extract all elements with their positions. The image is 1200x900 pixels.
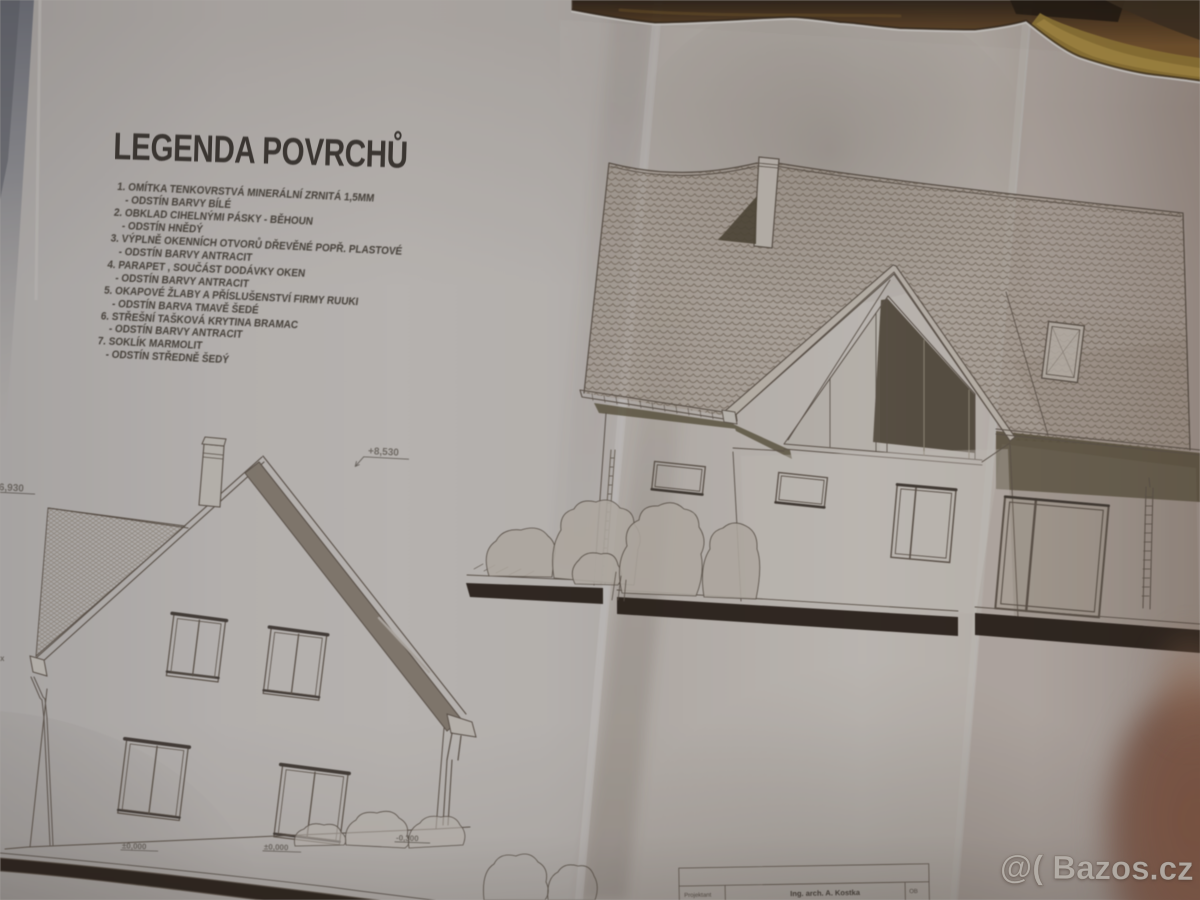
- svg-text:+8,530: +8,530: [368, 446, 400, 459]
- svg-text:Ing. arch. A. Kostka: Ing. arch. A. Kostka: [790, 888, 861, 898]
- svg-text:Projektant: Projektant: [684, 893, 711, 899]
- svg-text:OB: OB: [909, 889, 918, 895]
- svg-text:x: x: [0, 654, 5, 663]
